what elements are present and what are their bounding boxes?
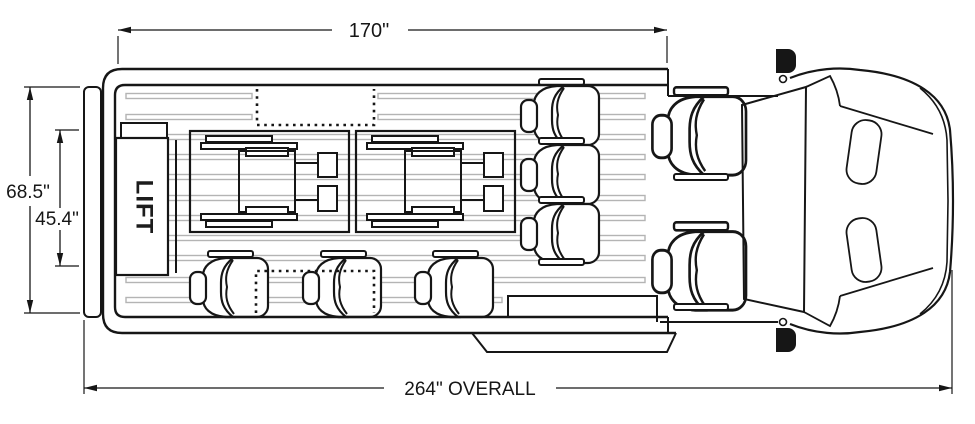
passenger-seat-bar xyxy=(674,304,728,310)
mirror-arm-bottom xyxy=(780,319,787,326)
headlight-left xyxy=(845,118,884,186)
running-board-step xyxy=(472,333,676,352)
rear-bumper xyxy=(84,87,101,317)
lift-area: LIFT xyxy=(116,123,176,275)
arrowhead xyxy=(27,300,33,313)
side-mirror-top xyxy=(776,49,796,73)
arrowhead xyxy=(84,385,97,391)
windshield xyxy=(742,87,806,312)
passenger-seat xyxy=(652,222,746,310)
driver-seat-bar xyxy=(674,174,728,180)
side-mirror-bottom xyxy=(776,328,796,352)
bench-bottom-bar xyxy=(539,259,584,265)
van-floor-plan-diagram: LIFT xyxy=(0,0,975,424)
arrowhead xyxy=(118,27,131,33)
hood-crease-top xyxy=(840,106,933,134)
lift-label: LIFT xyxy=(131,180,158,235)
bench-seat-row xyxy=(521,79,599,265)
floor-track xyxy=(378,115,645,120)
floor-track xyxy=(126,115,252,120)
bench-seat-2 xyxy=(521,138,599,204)
a-pillar-bottom xyxy=(804,296,840,326)
arrowhead xyxy=(939,385,952,391)
a-pillar-top xyxy=(806,76,840,106)
lift-pump-box xyxy=(121,123,167,138)
floor-track xyxy=(378,94,645,99)
dimension-label-264-overall: 264" OVERALL xyxy=(404,379,535,400)
dimension-label-45-4: 45.4" xyxy=(35,209,79,230)
dimension-68-5: 68.5" xyxy=(6,87,80,313)
arrowhead xyxy=(57,130,63,143)
dimension-label-68-5: 68.5" xyxy=(6,182,50,203)
bench-seat-3 xyxy=(521,197,599,263)
headlight-right xyxy=(845,216,884,284)
door-opening-marker-top xyxy=(257,89,374,125)
arrowhead xyxy=(57,253,63,266)
arrowhead xyxy=(27,87,33,100)
arrowhead xyxy=(654,27,667,33)
dimension-170: 170" xyxy=(118,20,667,64)
floor-track xyxy=(126,94,252,99)
hood-crease-bottom xyxy=(840,268,933,296)
dimension-label-170: 170" xyxy=(349,20,389,42)
mirror-arm-top xyxy=(780,76,787,83)
floor-plan-svg: LIFT xyxy=(0,0,975,424)
front-bumper-inner xyxy=(920,88,948,314)
driver-seat xyxy=(652,87,746,180)
front-silhouette xyxy=(790,69,953,334)
